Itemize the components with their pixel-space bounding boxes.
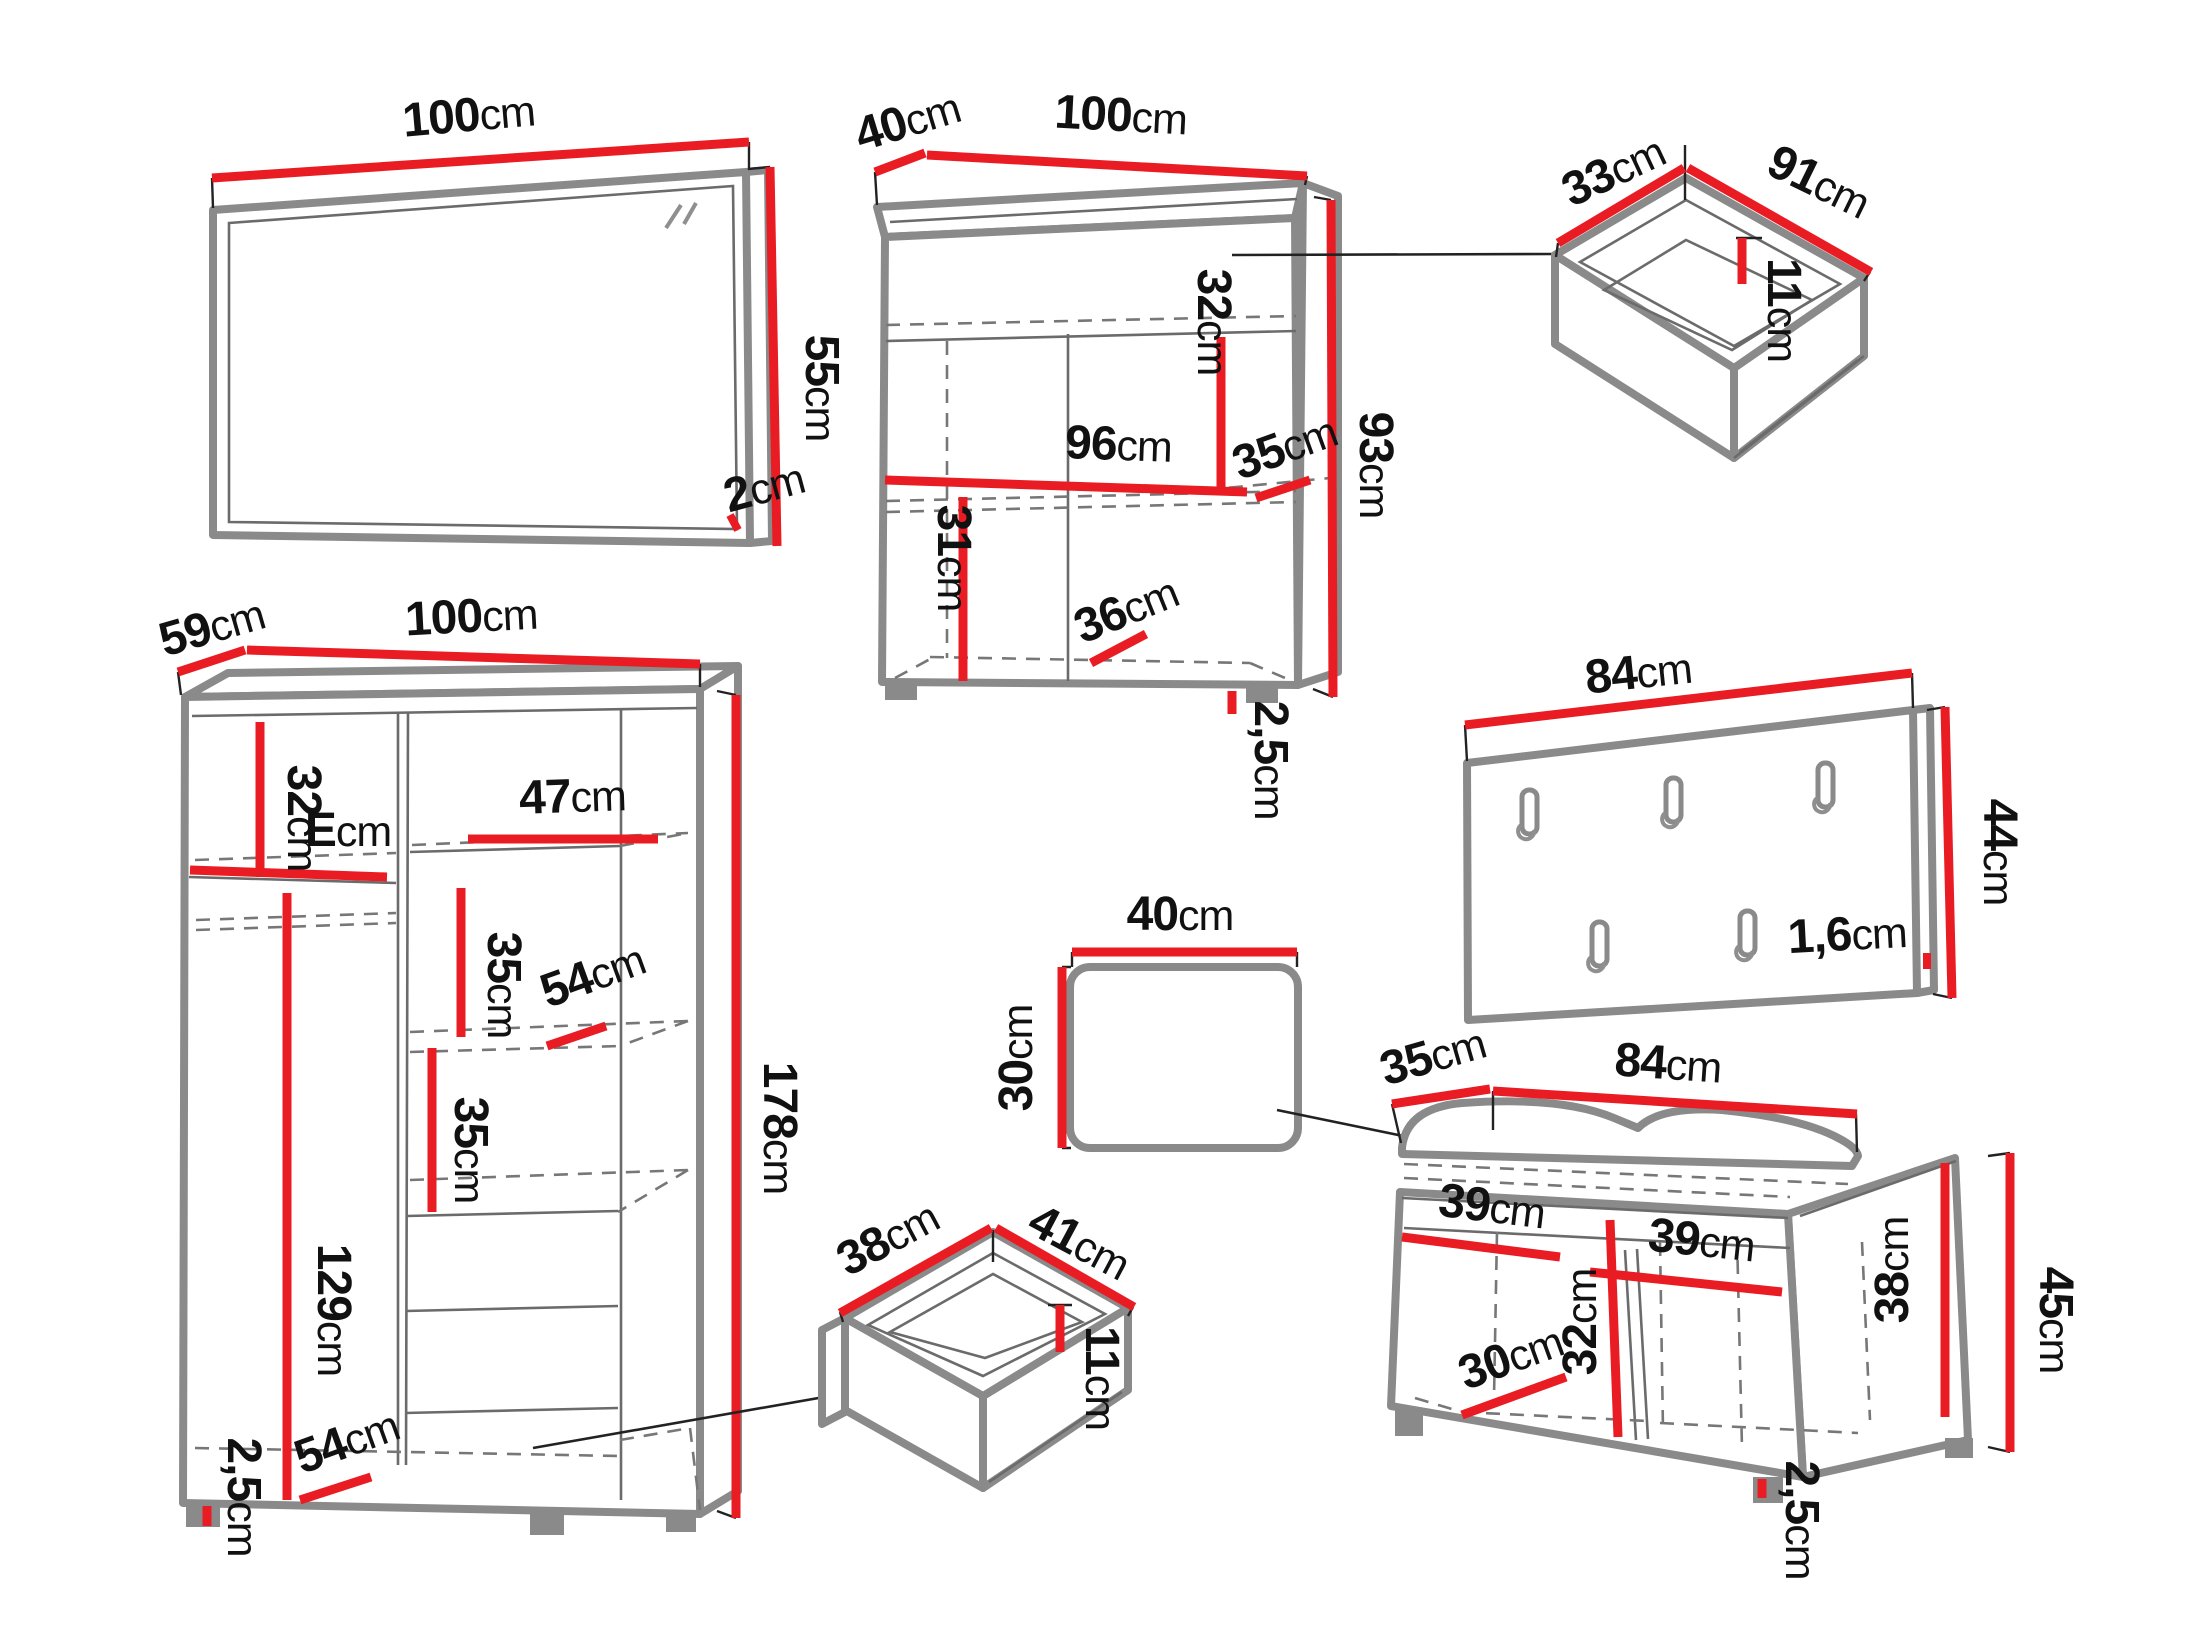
hook-icon [1814,763,1833,812]
stool-seat [1070,967,1298,1148]
stool-width-label: 40cm [1127,888,1234,941]
bench-height-label: 45cm [2029,1267,2082,1374]
drawer-top-drawing: 33cm 91cm 11cm [1554,124,1878,458]
furniture-diagram: 100cm 55cm 2cm 40cm 100cm 96cm 32cm 35cm… [0,0,2200,1650]
mirror-height-label: 55cm [795,335,848,442]
bench-foot-left [1395,1408,1423,1436]
wardrobe-height-label: 178cm [753,1062,806,1194]
drawer-bottom-drawing: 38cm 41cm 11cm [822,1190,1139,1488]
coatrack-height-label: 44cm [1973,799,2026,906]
sideboard-upperheight-label: 32cm [1187,269,1240,376]
wardrobe-drawing: 59cm 100cm 32cm Ecm 47cm 35cm 54cm 35cm … [153,587,806,1557]
sideboard-depth-label: 40cm [849,80,967,162]
wardrobe-hanging-label: 129cm [307,1244,360,1376]
bench-depth-label: 35cm [1374,1016,1491,1096]
sideboard-width-label: 100cm [1053,86,1188,146]
wardrobe-foot-right [666,1512,696,1532]
wardrobe-width-label: 100cm [404,587,539,647]
coat-rack-drawing: 84cm 44cm 1,6cm [1465,641,2026,1020]
mirror-width-dim-line [212,142,749,178]
wardrobe-rightshelf-label: 47cm [518,768,627,825]
wardrobe-depth-label: 59cm [153,587,270,667]
bench-rightinnerheight-label: 38cm [1866,1217,1919,1324]
callout-line-sideboard-drawer [1232,254,1554,255]
stool-depth-label: 30cm [990,1005,1043,1112]
drawer-bottom-height-label: 11cm [1075,1326,1128,1430]
sideboard-width-dim [927,155,1307,176]
sideboard-lowerheight-label: 31cm [927,505,980,612]
hook-icon [1736,911,1755,960]
coatrack-width-label: 84cm [1583,641,1695,705]
bench-plinth-label: 2,5cm [1775,1460,1828,1579]
drawer-top-height-label: 11cm [1757,258,1810,362]
hook-icon [1588,922,1607,971]
diagram-canvas: 100cm 55cm 2cm 40cm 100cm 96cm 32cm 35cm… [0,0,2200,1650]
wardrobe-width-dim [247,650,700,664]
hook-icon [1518,790,1537,839]
bench-drawing: 35cm 84cm 39cm 39cm 32cm 38cm 30cm 45cm … [1374,1016,2082,1580]
wardrobe-topshelf-label: Ecm [305,804,391,857]
stool-drawing: 40cm 30cm [990,888,1298,1148]
mirror-frame [213,172,750,543]
mirror-drawing: 100cm 55cm 2cm [212,83,848,546]
wardrobe-foot-mid [530,1513,564,1535]
mirror-width-label: 100cm [400,83,537,147]
bench-foot-side [1945,1438,1973,1458]
sideboard-drawing: 40cm 100cm 96cm 32cm 35cm 93cm 31cm 36cm… [849,80,1402,819]
sideboard-foot-left [885,682,917,700]
sideboard-innerwidth-label: 96cm [1064,416,1173,473]
coatrack-panel [1467,710,1917,1020]
bench-width-label: 84cm [1613,1033,1723,1093]
sideboard-height-label: 93cm [1349,412,1402,519]
coatrack-height-dim [1945,707,1952,998]
coatrack-thickness-label: 1,6cm [1786,905,1908,964]
hook-icon [1662,778,1681,827]
wardrobe-shelfgap1-label: 35cm [477,932,530,1039]
wardrobe-plinth-label: 2,5cm [217,1437,270,1556]
sideboard-plinth-label: 2,5cm [1244,700,1297,819]
wardrobe-shelfgap2-label: 35cm [444,1097,497,1204]
